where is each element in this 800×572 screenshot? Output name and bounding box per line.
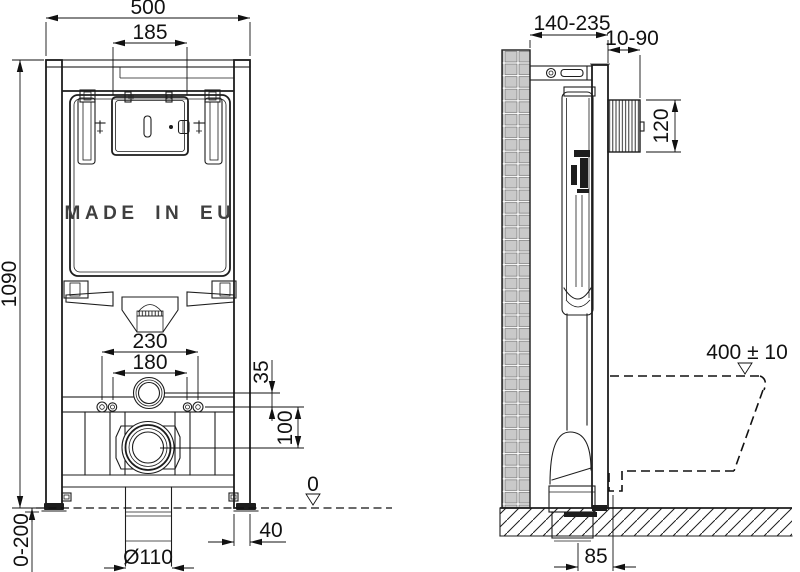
- dim-foot-depth: 40: [208, 514, 286, 546]
- dim-plate-recess: 10-90: [605, 27, 659, 98]
- dimensions: 500 185 1090 230 180: [0, 0, 788, 572]
- dim-plate-width: 185: [113, 21, 187, 95]
- water-supply-port: [134, 378, 165, 409]
- flush-plate-box: [608, 100, 644, 152]
- dim-plate-height: 120: [646, 100, 681, 152]
- adjust-screw-icon: [95, 121, 105, 133]
- svg-text:Ø110: Ø110: [123, 546, 173, 569]
- drawing-canvas: MADE IN EU: [0, 0, 800, 572]
- fill-valve: [571, 150, 590, 193]
- datum-triangle: [738, 363, 752, 374]
- dim-outlet-drop: 100: [160, 407, 304, 448]
- svg-text:180: 180: [132, 351, 167, 374]
- wall-bracket: [530, 66, 592, 80]
- svg-text:100: 100: [274, 410, 297, 445]
- technical-drawing: MADE IN EU: [0, 0, 800, 572]
- dim-leg-adjust: 0-200: [10, 508, 39, 572]
- waste-outlet: [116, 422, 180, 474]
- made-in-eu-label: MADE IN EU: [65, 203, 236, 224]
- dim-bowl-height: 400 ± 10: [706, 341, 788, 374]
- dim-outlet-dia: Ø110: [104, 546, 194, 569]
- svg-text:35: 35: [250, 360, 273, 383]
- plate-dot: [169, 125, 173, 129]
- svg-text:400 ± 10: 400 ± 10: [706, 341, 788, 364]
- flush-pipe: [549, 314, 595, 512]
- side-view: [500, 50, 792, 541]
- cistern-lower-fittings: [64, 281, 236, 332]
- svg-text:1090: 1090: [0, 261, 21, 308]
- front-view: MADE IN EU: [42, 60, 258, 566]
- flush-slot: [144, 116, 151, 137]
- svg-text:10-90: 10-90: [605, 27, 659, 50]
- dim-total-height: 1090: [0, 60, 44, 508]
- svg-text:85: 85: [584, 545, 607, 568]
- toilet-bowl-outline: [609, 376, 765, 491]
- svg-text:500: 500: [130, 0, 165, 19]
- access-plate: [112, 95, 189, 155]
- svg-text:140-235: 140-235: [533, 12, 610, 35]
- adjust-screw-icon: [194, 121, 204, 133]
- floor-hatch: [500, 508, 792, 536]
- svg-text:40: 40: [259, 519, 282, 542]
- svg-text:185: 185: [132, 21, 167, 44]
- tiled-wall: [502, 50, 530, 508]
- svg-text:0: 0: [307, 473, 319, 496]
- svg-text:230: 230: [132, 330, 167, 353]
- dim-depth-adjust: 140-235: [530, 12, 611, 63]
- svg-text:120: 120: [650, 108, 673, 143]
- cistern-side: [562, 87, 595, 315]
- svg-text:0-200: 0-200: [10, 513, 33, 567]
- floor-datum: 0: [36, 473, 392, 508]
